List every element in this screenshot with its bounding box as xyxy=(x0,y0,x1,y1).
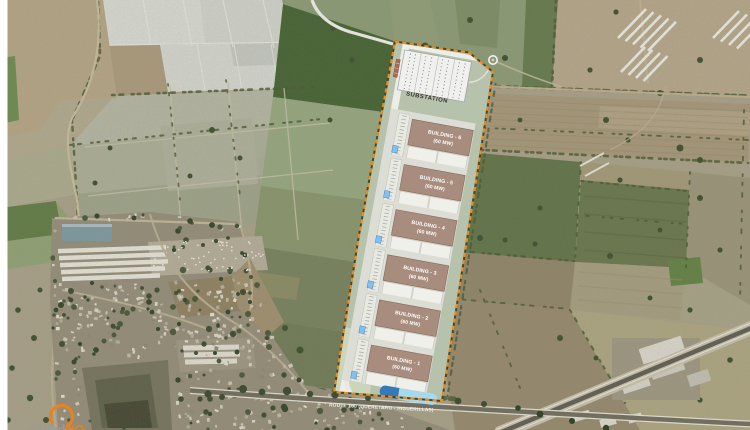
svg-text:CloudHQ: CloudHQ xyxy=(30,423,84,430)
